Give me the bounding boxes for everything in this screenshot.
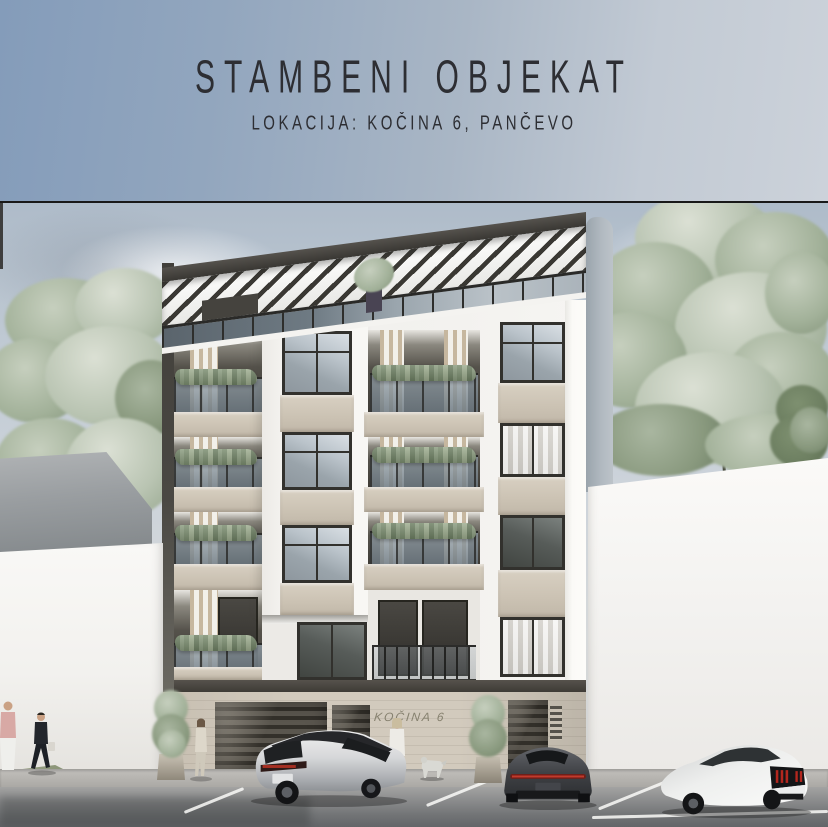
slab-band — [162, 680, 586, 692]
balcony-hedge — [372, 365, 476, 381]
spandrel — [364, 487, 484, 512]
balcony-hedge — [175, 369, 257, 385]
window — [500, 423, 565, 477]
window-mullion — [532, 518, 534, 567]
spandrel — [364, 412, 484, 437]
balcony-hedge — [175, 449, 257, 465]
window-mullion — [532, 426, 534, 474]
foliage-blob — [790, 407, 828, 453]
spandrel — [170, 564, 264, 590]
suv-car — [246, 724, 412, 808]
window-mullion — [532, 325, 534, 380]
window-mullion — [316, 334, 318, 392]
vent-grille — [550, 706, 562, 740]
render-edge-line — [0, 203, 3, 269]
window-mullion — [316, 528, 318, 580]
window-mullion — [503, 342, 562, 344]
poster-title: STAMBENI OBJEKAT — [195, 52, 633, 105]
spandrel — [170, 412, 264, 437]
balcony-hedge — [372, 447, 476, 463]
facade-edge-lit — [565, 300, 586, 692]
building-side-return — [586, 217, 613, 492]
poster-subtitle: LOKACIJA: KOČINA 6, PANČEVO — [251, 112, 576, 135]
window — [500, 322, 565, 383]
window-mullion — [285, 451, 349, 453]
spandrel — [498, 570, 567, 617]
poster-header: STAMBENI OBJEKAT LOKACIJA: KOČINA 6, PAN… — [0, 0, 828, 203]
spandrel — [280, 583, 354, 615]
spandrel — [280, 395, 354, 432]
building: KOČINA 6 — [162, 205, 613, 772]
window-mullion — [285, 544, 349, 546]
french-railing — [372, 645, 476, 681]
balcony-hedge — [175, 635, 257, 651]
window-mullion — [316, 435, 318, 487]
foliage-blob — [765, 252, 828, 334]
window — [500, 515, 565, 570]
window-mullion — [331, 625, 333, 677]
window — [282, 525, 352, 583]
porsche-car — [494, 740, 602, 812]
spandrel — [280, 490, 354, 525]
window — [500, 617, 565, 677]
spandrel — [170, 487, 264, 512]
spandrel — [364, 564, 484, 590]
window-mullion — [285, 351, 349, 353]
balcony-hedge — [175, 525, 257, 541]
real-estate-poster: KOČINA 6 — [0, 0, 828, 827]
window-mullion — [532, 620, 534, 674]
pedestrian-woman-beige — [186, 718, 216, 782]
window — [282, 331, 352, 395]
pedestrian-man-suit — [24, 712, 60, 776]
window — [297, 622, 367, 680]
window — [282, 432, 352, 490]
spandrel — [498, 383, 567, 423]
mustang-car — [656, 736, 818, 820]
dog — [416, 754, 448, 782]
foliage-blob — [158, 730, 186, 758]
spandrel — [170, 667, 264, 680]
balcony-hedge — [372, 523, 476, 539]
pedestrian-partial-left — [0, 700, 18, 774]
spandrel — [498, 477, 567, 515]
